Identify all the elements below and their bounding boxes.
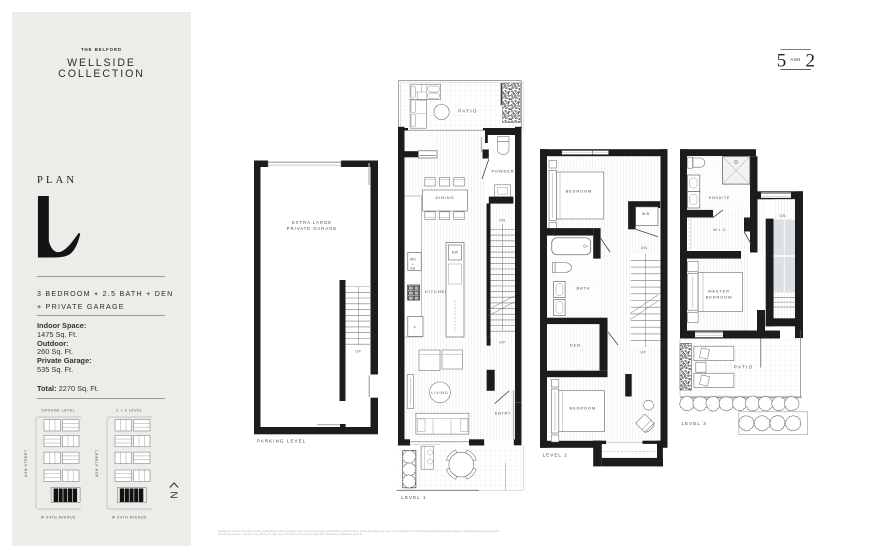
svg-text:W 54TH AVENUE: W 54TH AVENUE bbox=[112, 516, 147, 520]
svg-text:2: 2 bbox=[806, 50, 816, 71]
svg-text:EXTRA LARGE: EXTRA LARGE bbox=[292, 220, 332, 225]
svg-text:W/B: W/B bbox=[642, 212, 650, 216]
svg-text:LEVEL 2: LEVEL 2 bbox=[543, 453, 568, 458]
svg-text:WD: WD bbox=[410, 258, 417, 262]
svg-text:POWDER: POWDER bbox=[491, 168, 514, 173]
svg-text:KITCHEN: KITCHEN bbox=[425, 289, 449, 294]
svg-text:ASH STREET: ASH STREET bbox=[95, 449, 99, 477]
svg-text:W 54TH AVENUE: W 54TH AVENUE bbox=[41, 516, 76, 520]
svg-text:SD: SD bbox=[410, 267, 416, 271]
svg-text:PARKING LEVEL: PARKING LEVEL bbox=[257, 439, 306, 444]
svg-text:PRIVATE GARAGE: PRIVATE GARAGE bbox=[287, 226, 337, 231]
svg-text:GROUND LEVEL: GROUND LEVEL bbox=[41, 408, 75, 412]
svg-text:ASH STREET: ASH STREET bbox=[24, 449, 28, 477]
svg-text:PATIO: PATIO bbox=[734, 364, 754, 369]
svg-text:5: 5 bbox=[777, 50, 787, 71]
svg-text:F: F bbox=[414, 326, 416, 330]
svg-text:W.I.C.: W.I.C. bbox=[713, 228, 728, 232]
svg-text:UP: UP bbox=[500, 341, 506, 345]
svg-text:MASTER: MASTER bbox=[708, 288, 730, 293]
svg-text:LEVEL 3: LEVEL 3 bbox=[682, 421, 707, 426]
svg-text:ENTRY: ENTRY bbox=[495, 412, 511, 416]
svg-text:PATIO: PATIO bbox=[458, 109, 478, 114]
svg-text:BEDROOM: BEDROOM bbox=[566, 189, 593, 194]
svg-text:N: N bbox=[168, 491, 179, 498]
svg-text:BATH: BATH bbox=[577, 286, 591, 291]
svg-text:DW: DW bbox=[452, 251, 459, 255]
svg-text:UP: UP bbox=[356, 350, 362, 354]
svg-text:ENSUITE: ENSUITE bbox=[709, 196, 730, 200]
svg-text:LEVEL 1: LEVEL 1 bbox=[401, 495, 426, 500]
svg-text:BEDROOM: BEDROOM bbox=[706, 294, 733, 299]
svg-text:LIVING: LIVING bbox=[431, 391, 448, 395]
svg-text:DN: DN bbox=[641, 246, 647, 250]
svg-text:BEDROOM: BEDROOM bbox=[569, 405, 596, 410]
svg-text:ASH: ASH bbox=[790, 57, 801, 62]
svg-text:DINING: DINING bbox=[435, 195, 454, 200]
svg-text:DEN: DEN bbox=[570, 343, 581, 348]
svg-text:UP: UP bbox=[640, 350, 646, 354]
svg-text:2 + 3 LEVEL: 2 + 3 LEVEL bbox=[116, 408, 142, 412]
svg-text:DN: DN bbox=[780, 214, 786, 218]
svg-text:DN: DN bbox=[499, 218, 505, 222]
